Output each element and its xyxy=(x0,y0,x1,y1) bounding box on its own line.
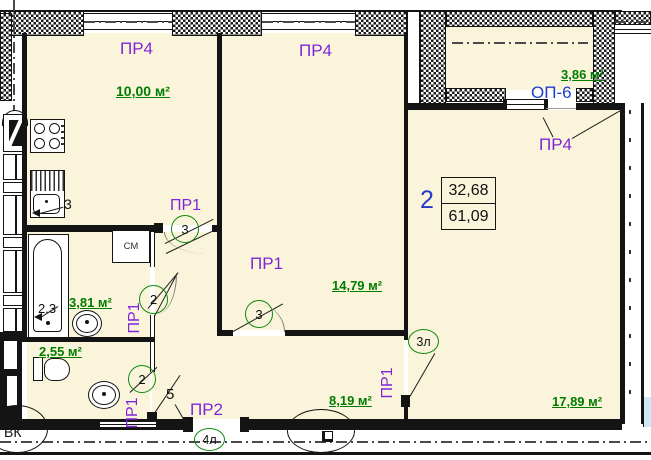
sink-faucet xyxy=(45,200,48,203)
living-top-wall xyxy=(408,103,506,110)
living-area: 17,89 м² xyxy=(552,394,602,409)
vk-label: ВК xyxy=(4,424,22,440)
stove-burner xyxy=(49,123,60,134)
bathroom-basin xyxy=(72,310,102,337)
vent-diagonal xyxy=(9,120,22,146)
stove-burner xyxy=(34,138,45,149)
bedroom-area: 14,79 м² xyxy=(332,278,382,293)
entrance-jamb xyxy=(240,417,249,432)
stove-knobs xyxy=(61,125,64,147)
wall-pier xyxy=(355,11,407,36)
sink-equip-mark: 3 xyxy=(64,196,72,212)
washing-machine: СМ xyxy=(112,230,150,263)
door-mark: 3л xyxy=(416,335,430,349)
door-mark: 3 xyxy=(255,307,262,322)
kitchen-bottom-wall xyxy=(212,225,222,232)
wc-door-label: ПР1 xyxy=(124,395,142,431)
balcony-right-wall xyxy=(593,11,615,106)
leader-arrow xyxy=(32,209,40,217)
balcony-door-label: ПР4 xyxy=(539,135,572,155)
balcony-top-wall xyxy=(446,11,593,27)
balcony-parapet xyxy=(446,88,506,102)
bathtub-drain xyxy=(46,321,50,325)
partition-mark: 5 xyxy=(166,386,174,403)
bathroom-right-wall xyxy=(150,232,155,267)
door-mark: 4л xyxy=(202,433,216,447)
balcony-area: 3,86 м² xyxy=(561,67,604,82)
party-wall-ticks xyxy=(629,110,631,418)
balcony-parapet xyxy=(576,88,593,102)
balcony-axis-line xyxy=(452,42,588,44)
toilet-bowl xyxy=(44,358,70,381)
wc-area: 2,55 м² xyxy=(39,344,82,359)
balcony-left-pier xyxy=(420,11,446,106)
vent-block xyxy=(3,340,18,370)
kitchen-area: 10,00 м² xyxy=(116,83,170,99)
stove-burner xyxy=(49,138,60,149)
bedroom-living-wall xyxy=(404,33,408,340)
bedroom-bottom-wall xyxy=(222,330,233,336)
kitchen-window-label: ПР4 xyxy=(120,39,153,59)
neighbor-window-line xyxy=(615,29,651,30)
washing-machine-label: СМ xyxy=(124,241,139,252)
axis-line xyxy=(615,21,651,23)
neighbor-window-line xyxy=(615,33,651,34)
electric-panel-ellipse xyxy=(287,409,355,453)
kitchen-left-wall xyxy=(22,33,27,342)
stove-burner xyxy=(34,123,45,134)
door-mark-circle: 4л xyxy=(194,428,225,451)
living-right-wall xyxy=(620,103,625,424)
wc-basin xyxy=(88,381,120,409)
door-mark-circle: 3л xyxy=(408,329,439,354)
wall-axis-line xyxy=(84,21,172,23)
tub-dimension: 2.3 xyxy=(38,301,56,316)
vent-block xyxy=(6,375,18,407)
left-axis-line xyxy=(13,0,15,112)
kitchen-bedroom-wall xyxy=(217,33,222,336)
drainboard xyxy=(31,171,64,191)
top-wall-neighbor xyxy=(615,11,651,25)
vent-shaft-symbol xyxy=(9,120,22,146)
balcony-window-code: ОП-6 xyxy=(531,83,572,103)
electric-panel-symbol xyxy=(322,431,333,442)
entrance-door-label: ПР2 xyxy=(190,400,223,420)
basin-faucet xyxy=(85,320,89,324)
basin-faucet xyxy=(102,392,106,396)
living-top-wall xyxy=(576,103,622,110)
door-mark: 3 xyxy=(181,222,188,237)
door-mark-circle: 2 xyxy=(128,365,156,393)
living-area-value: 32,68 xyxy=(442,178,495,204)
wall-axis-line xyxy=(262,21,355,23)
neighbor-floor xyxy=(643,397,651,427)
hall-area: 8,19 м² xyxy=(329,393,372,408)
apartment-number: 2 xyxy=(420,186,434,215)
total-area-value: 61,09 xyxy=(442,204,495,229)
bathroom-door-label: ПР1 xyxy=(126,300,144,336)
door-mark-circle: 3 xyxy=(245,300,273,328)
bathtub xyxy=(28,234,69,338)
door-jamb xyxy=(154,223,163,233)
bathroom-area: 3,81 м² xyxy=(69,295,112,310)
shaft xyxy=(407,11,420,106)
party-wall-line xyxy=(641,103,644,424)
floor-plan: СМ 3 2 2 3 3л 4л 2 32,68 61,09 ПР4 ПР4 П… xyxy=(0,0,651,460)
bedroom-door-label: ПР1 xyxy=(250,254,283,274)
apartment-stamp: 32,68 61,09 xyxy=(441,177,496,230)
living-floor xyxy=(408,110,620,419)
toilet-tank xyxy=(33,357,43,381)
corridor-door-label: ПР1 xyxy=(170,197,201,215)
living-door-label: ПР1 xyxy=(379,365,397,401)
bedroom-bottom-wall xyxy=(285,330,404,336)
door-jamb xyxy=(401,395,410,407)
door-mark: 2 xyxy=(150,292,157,307)
stove xyxy=(30,119,65,153)
balcony-door-threshold xyxy=(546,108,576,109)
door-mark: 2 xyxy=(138,372,145,387)
bedroom-window-label: ПР4 xyxy=(299,41,332,61)
door-mark-circle: 3 xyxy=(171,215,199,243)
left-wall-pier xyxy=(0,13,12,101)
